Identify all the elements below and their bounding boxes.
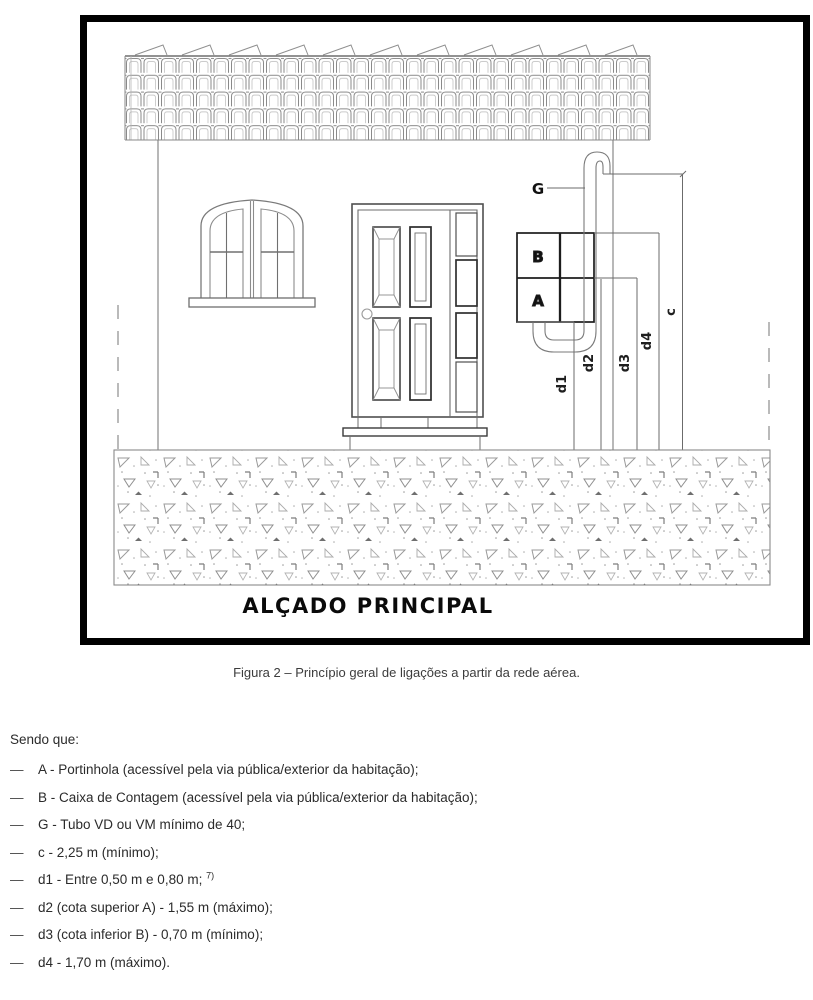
legend-item-text: c - 2,25 m (mínimo); xyxy=(38,844,159,861)
door-knob xyxy=(362,309,372,319)
legend-item-g: — G - Tubo VD ou VM mínimo de 40; xyxy=(10,816,800,833)
dash-marker: — xyxy=(10,871,38,888)
dash-marker: — xyxy=(10,926,38,943)
roof-ridge-caps xyxy=(135,45,637,55)
label-d3: d3 xyxy=(618,354,633,372)
label-d1: d1 xyxy=(555,375,570,393)
legend-item-a: — A - Portinhola (acessível pela via púb… xyxy=(10,761,800,778)
legend-item-text: B - Caixa de Contagem (acessível pela vi… xyxy=(38,789,478,806)
legend-item-d4: — d4 - 1,70 m (máximo). xyxy=(10,954,800,971)
roof-tiles xyxy=(125,56,650,140)
box-b-label: B xyxy=(532,248,543,266)
window xyxy=(189,200,315,307)
dash-marker: — xyxy=(10,761,38,778)
meter-boxes: B A xyxy=(517,233,594,322)
window-sill xyxy=(189,298,315,307)
legend-item-b: — B - Caixa de Contagem (acessível pela … xyxy=(10,789,800,806)
label-c: c xyxy=(664,308,679,316)
legend-item-text-main: d1 - Entre 0,50 m e 0,80 m; xyxy=(38,872,206,887)
door-panels xyxy=(373,227,431,400)
door-step xyxy=(343,417,487,450)
door xyxy=(343,204,487,450)
label-d2: d2 xyxy=(582,354,597,372)
legend-block: Sendo que: — A - Portinhola (acessível p… xyxy=(10,732,800,981)
legend-item-text: d4 - 1,70 m (máximo). xyxy=(38,954,170,971)
door-sidelight xyxy=(456,213,477,412)
legend-item-c: — c - 2,25 m (mínimo); xyxy=(10,844,800,861)
legend-item-text: G - Tubo VD ou VM mínimo de 40; xyxy=(38,816,245,833)
legend-item-text: d3 (cota inferior B) - 0,70 m (mínimo); xyxy=(38,926,263,943)
legend-item-d2: — d2 (cota superior A) - 1,55 m (máximo)… xyxy=(10,899,800,916)
dash-marker: — xyxy=(10,954,38,971)
document-page: B A G xyxy=(0,0,813,1000)
figure-2-drawing: B A G xyxy=(0,0,813,650)
footnote-ref: 7) xyxy=(206,871,214,881)
dash-marker: — xyxy=(10,816,38,833)
dash-marker: — xyxy=(10,899,38,916)
roof xyxy=(125,45,650,140)
ground-hatch xyxy=(114,450,770,585)
legend-item-d1: — d1 - Entre 0,50 m e 0,80 m; 7) xyxy=(10,871,800,888)
legend-item-text: A - Portinhola (acessível pela via públi… xyxy=(38,761,418,778)
legend-intro: Sendo que: xyxy=(10,732,800,747)
dash-marker: — xyxy=(10,789,38,806)
dash-marker: — xyxy=(10,844,38,861)
label-d4: d4 xyxy=(640,332,655,350)
dimension-lines xyxy=(517,171,686,450)
figure-title: ALÇADO PRINCIPAL xyxy=(242,594,493,618)
legend-item-text: d2 (cota superior A) - 1,55 m (máximo); xyxy=(38,899,273,916)
label-g: G xyxy=(532,180,544,198)
legend-item-d3: — d3 (cota inferior B) - 0,70 m (mínimo)… xyxy=(10,926,800,943)
box-a-label: A xyxy=(532,292,544,310)
legend-item-text: d1 - Entre 0,50 m e 0,80 m; 7) xyxy=(38,871,214,888)
figure-caption: Figura 2 – Princípio geral de ligações a… xyxy=(0,665,813,680)
